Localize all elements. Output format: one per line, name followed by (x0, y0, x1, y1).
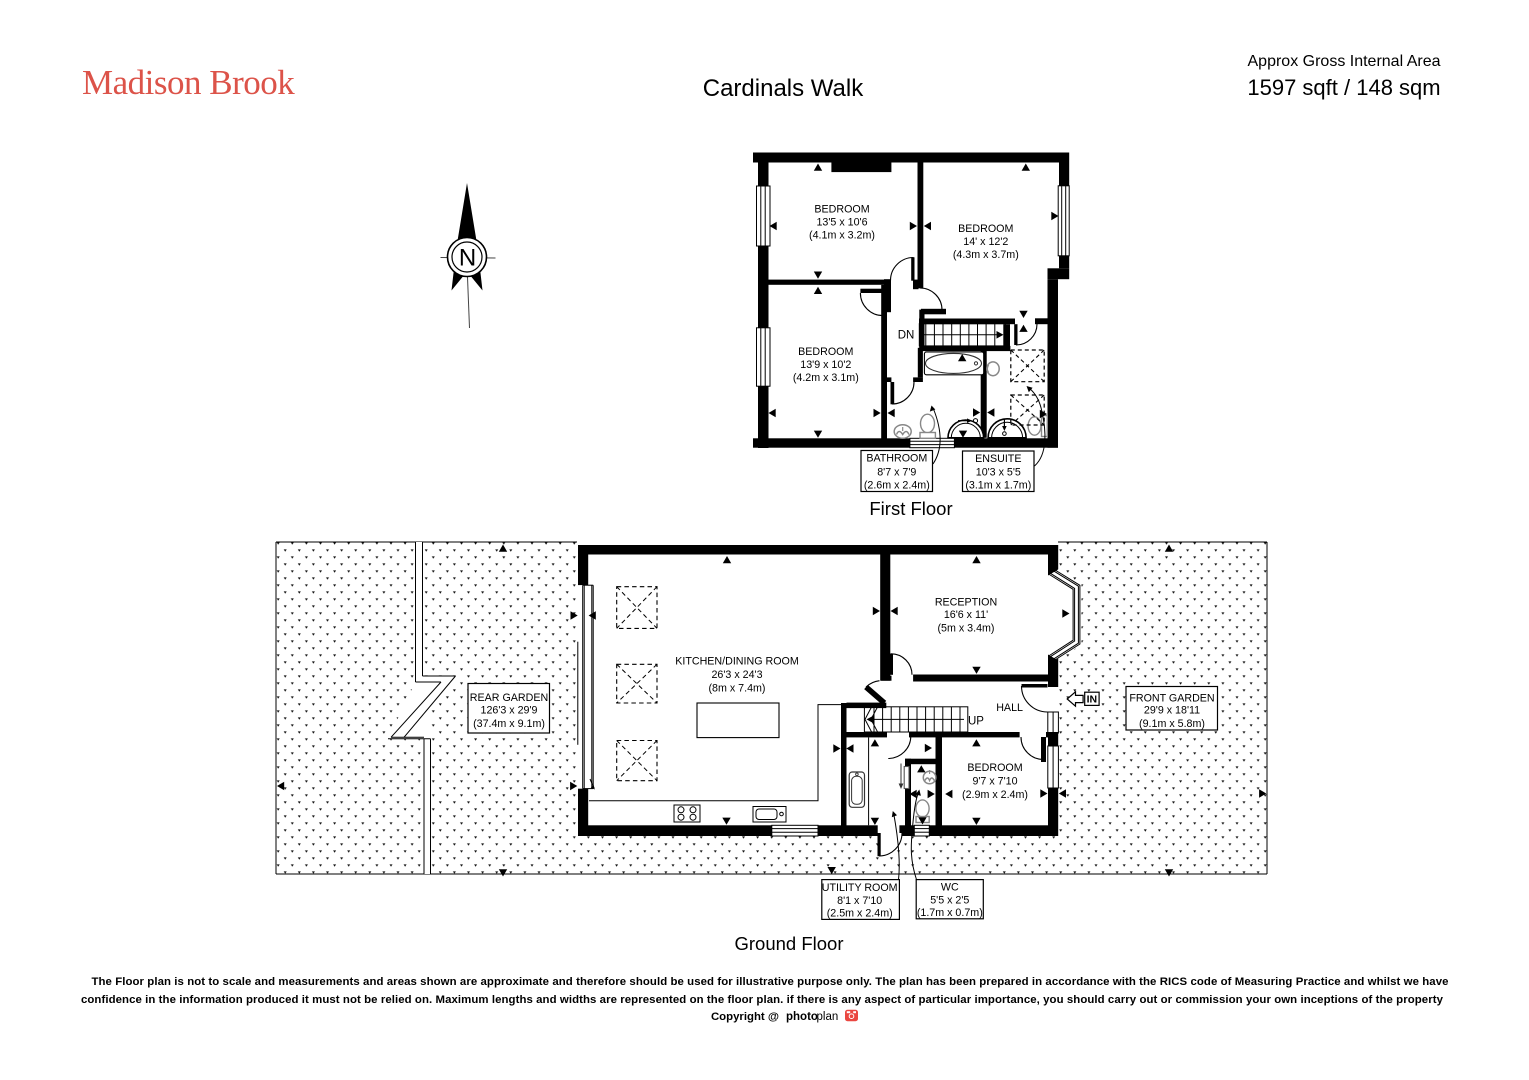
svg-text:8'7 x 7'9: 8'7 x 7'9 (877, 467, 916, 479)
svg-text:(9.1m x 5.8m): (9.1m x 5.8m) (1139, 718, 1205, 730)
svg-text:14' x 12'2: 14' x 12'2 (963, 236, 1008, 248)
svg-text:BEDROOM: BEDROOM (814, 204, 869, 216)
svg-text:BEDROOM: BEDROOM (958, 223, 1013, 235)
svg-text:(3.1m x 1.7m): (3.1m x 1.7m) (965, 480, 1031, 492)
svg-text:(4.3m x 3.7m): (4.3m x 3.7m) (953, 249, 1019, 261)
svg-text:The Floor plan is not to scale: The Floor plan is not to scale and measu… (91, 976, 1448, 988)
svg-text:KITCHEN/DINING ROOM: KITCHEN/DINING ROOM (675, 656, 799, 668)
svg-text:N: N (459, 245, 476, 272)
svg-text:REAR GARDEN: REAR GARDEN (470, 692, 548, 704)
svg-text:5'5 x 2'5: 5'5 x 2'5 (930, 895, 969, 907)
svg-text:Cardinals Walk: Cardinals Walk (703, 75, 864, 102)
svg-text:13'9 x 10'2: 13'9 x 10'2 (800, 359, 851, 371)
svg-text:IN: IN (1087, 694, 1098, 706)
svg-text:First Floor: First Floor (869, 498, 952, 519)
svg-text:UP: UP (968, 716, 984, 728)
svg-text:1597 sqft / 148 sqm: 1597 sqft / 148 sqm (1247, 75, 1440, 100)
svg-text:(2.5m x 2.4m): (2.5m x 2.4m) (827, 908, 893, 920)
svg-text:WC: WC (941, 882, 959, 894)
svg-text:Ground Floor: Ground Floor (735, 933, 844, 954)
svg-text:(4.1m x 3.2m): (4.1m x 3.2m) (809, 230, 875, 242)
svg-text:FRONT GARDEN: FRONT GARDEN (1129, 693, 1214, 705)
svg-text:UTILITY ROOM: UTILITY ROOM (822, 882, 898, 894)
svg-text:HALL: HALL (996, 702, 1023, 714)
svg-text:Approx Gross Internal Area: Approx Gross Internal Area (1248, 53, 1441, 70)
svg-text:(8m x 7.4m): (8m x 7.4m) (708, 683, 765, 695)
svg-text:ENSUITE: ENSUITE (975, 453, 1021, 465)
svg-text:(2.6m x 2.4m): (2.6m x 2.4m) (864, 480, 930, 492)
svg-text:(37.4m x 9.1m): (37.4m x 9.1m) (473, 718, 545, 730)
svg-text:confidence in the information: confidence in the information produced i… (81, 994, 1444, 1006)
svg-text:13'5 x 10'6: 13'5 x 10'6 (816, 217, 867, 229)
svg-text:(2.9m x 2.4m): (2.9m x 2.4m) (962, 789, 1028, 801)
svg-text:Copyright @: Copyright @ (711, 1011, 779, 1023)
svg-text:BEDROOM: BEDROOM (967, 762, 1022, 774)
svg-text:16'6 x 11': 16'6 x 11' (944, 609, 988, 621)
svg-text:29'9 x 18'11: 29'9 x 18'11 (1144, 705, 1200, 717)
svg-text:BEDROOM: BEDROOM (798, 346, 853, 358)
svg-text:(5m x 3.4m): (5m x 3.4m) (937, 623, 994, 635)
svg-text:9'7 x 7'10: 9'7 x 7'10 (972, 776, 1017, 788)
svg-text:Madison Brook: Madison Brook (82, 63, 295, 102)
svg-text:(1.7m x 0.7m): (1.7m x 0.7m) (917, 907, 983, 919)
svg-text:8'1 x 7'10: 8'1 x 7'10 (837, 895, 882, 907)
svg-text:(4.2m x 3.1m): (4.2m x 3.1m) (793, 372, 859, 384)
svg-text:BATHROOM: BATHROOM (866, 453, 927, 465)
svg-text:photo: photo (786, 1011, 818, 1023)
svg-text:26'3 x 24'3: 26'3 x 24'3 (711, 669, 762, 681)
svg-text:plan: plan (817, 1011, 839, 1023)
svg-text:10'3 x 5'5: 10'3 x 5'5 (976, 467, 1021, 479)
svg-text:DN: DN (898, 330, 915, 342)
svg-text:126'3 x 29'9: 126'3 x 29'9 (481, 705, 538, 717)
svg-text:RECEPTION: RECEPTION (935, 597, 997, 609)
